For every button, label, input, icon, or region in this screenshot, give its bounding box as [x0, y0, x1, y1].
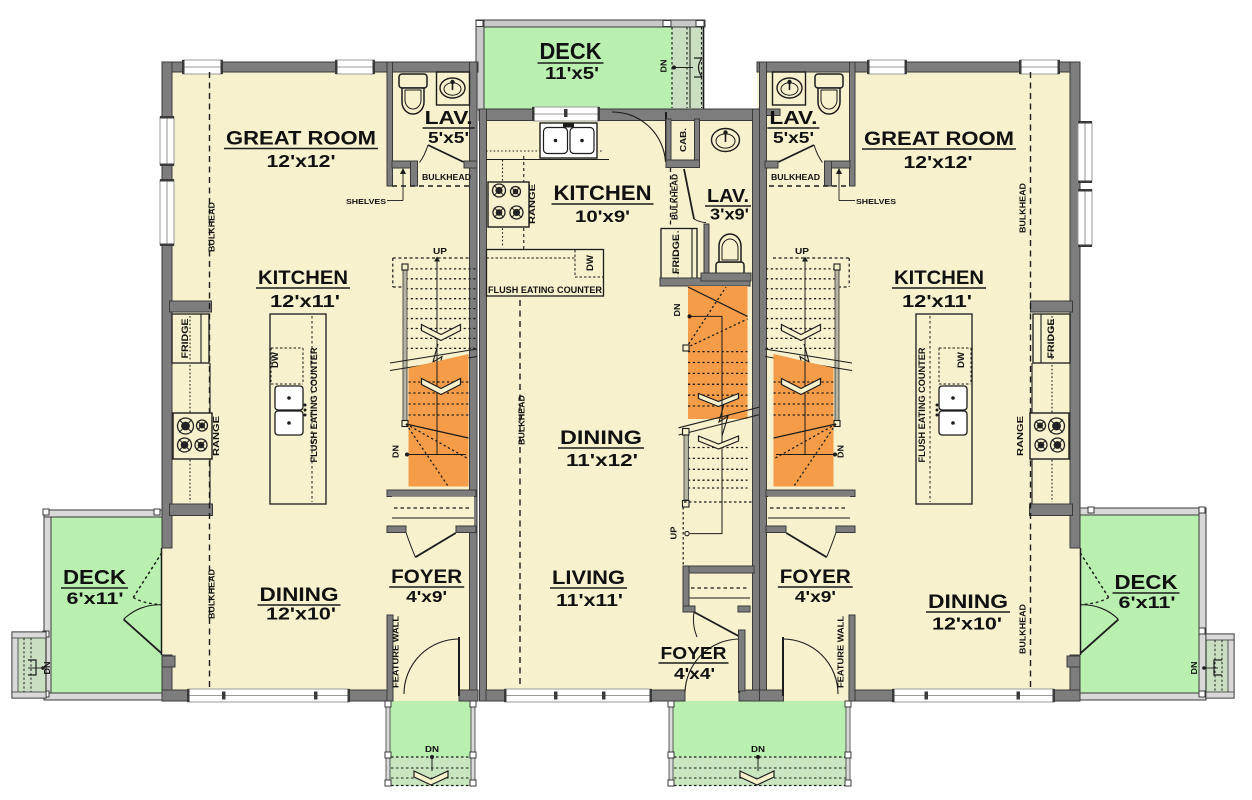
- svg-text:5'x5': 5'x5': [773, 130, 814, 147]
- svg-text:RANGE: RANGE: [211, 416, 221, 456]
- svg-text:FLUSH EATING COUNTER: FLUSH EATING COUNTER: [917, 347, 927, 462]
- svg-text:LAV.: LAV.: [707, 185, 749, 206]
- svg-text:DECK: DECK: [63, 567, 127, 589]
- svg-text:FOYER: FOYER: [661, 643, 727, 663]
- svg-text:CAB.: CAB.: [679, 128, 688, 152]
- svg-text:DW: DW: [270, 351, 280, 368]
- svg-text:DN: DN: [391, 445, 401, 458]
- svg-text:FLUSH EATING COUNTER: FLUSH EATING COUNTER: [488, 285, 602, 296]
- svg-text:12'x12': 12'x12': [267, 151, 336, 171]
- svg-text:DN: DN: [672, 304, 682, 317]
- svg-text:UP: UP: [433, 246, 447, 256]
- svg-text:SHELVES: SHELVES: [346, 199, 386, 206]
- svg-text:RANGE: RANGE: [1015, 416, 1025, 456]
- svg-text:KITCHEN: KITCHEN: [554, 182, 652, 205]
- svg-text:FOYER: FOYER: [391, 567, 462, 588]
- svg-text:UP: UP: [669, 526, 679, 539]
- svg-text:FOYER: FOYER: [780, 567, 851, 588]
- svg-text:RANGE: RANGE: [527, 184, 537, 224]
- svg-text:DINING: DINING: [928, 592, 1008, 613]
- svg-text:FRIDGE: FRIDGE: [671, 234, 681, 274]
- svg-text:DN: DN: [659, 60, 669, 73]
- svg-text:SHELVES: SHELVES: [856, 199, 896, 206]
- svg-text:BULKHEAD: BULKHEAD: [207, 569, 217, 619]
- svg-text:11'x11': 11'x11': [556, 590, 623, 610]
- svg-text:FLUSH EATING COUNTER: FLUSH EATING COUNTER: [309, 347, 319, 462]
- svg-text:BULKHEAD: BULKHEAD: [517, 395, 527, 445]
- svg-text:FRIDGE: FRIDGE: [180, 319, 190, 359]
- svg-text:BULKHEAD: BULKHEAD: [771, 173, 820, 182]
- svg-text:11'x12': 11'x12': [566, 450, 638, 470]
- svg-text:FRIDGE: FRIDGE: [1046, 319, 1056, 359]
- svg-text:LAV.: LAV.: [425, 107, 473, 128]
- svg-text:3'x9': 3'x9': [710, 207, 749, 224]
- svg-text:12'x12': 12'x12': [904, 152, 973, 172]
- svg-text:12'x11': 12'x11': [270, 291, 340, 311]
- svg-text:GREAT ROOM: GREAT ROOM: [226, 129, 376, 150]
- svg-text:5'x5': 5'x5': [428, 130, 469, 147]
- svg-text:BULKHEAD: BULKHEAD: [1018, 604, 1028, 654]
- svg-text:DECK: DECK: [1115, 572, 1179, 594]
- svg-text:10'x9': 10'x9': [575, 207, 630, 226]
- svg-text:4'x9': 4'x9': [795, 589, 836, 606]
- svg-text:DINING: DINING: [560, 428, 642, 449]
- svg-text:12'x10': 12'x10': [932, 614, 1002, 634]
- svg-text:4'x9': 4'x9': [406, 589, 447, 606]
- svg-text:FEATURE WALL: FEATURE WALL: [836, 616, 846, 688]
- svg-text:GREAT ROOM: GREAT ROOM: [864, 129, 1014, 150]
- svg-text:UP: UP: [795, 246, 809, 256]
- svg-text:DN: DN: [425, 744, 439, 754]
- svg-text:12'x10': 12'x10': [266, 604, 336, 624]
- svg-text:DECK: DECK: [540, 38, 602, 64]
- svg-text:6'x11': 6'x11': [67, 589, 124, 608]
- svg-text:FEATURE WALL: FEATURE WALL: [391, 616, 401, 688]
- svg-text:DN: DN: [751, 744, 765, 754]
- svg-text:BULKHEAD: BULKHEAD: [422, 173, 471, 182]
- svg-text:KITCHEN: KITCHEN: [258, 268, 348, 289]
- svg-text:BULKHEAD: BULKHEAD: [207, 202, 217, 252]
- svg-text:4'x4': 4'x4': [674, 666, 715, 683]
- svg-text:DN: DN: [1190, 661, 1199, 674]
- svg-text:LAV.: LAV.: [769, 107, 817, 128]
- svg-text:DW: DW: [956, 351, 966, 368]
- svg-text:11'x5': 11'x5': [545, 63, 599, 83]
- svg-text:KITCHEN: KITCHEN: [894, 268, 984, 289]
- svg-text:BULKHEAD: BULKHEAD: [671, 174, 680, 220]
- svg-text:BULKHEAD: BULKHEAD: [1018, 183, 1028, 233]
- svg-text:12'x11': 12'x11': [902, 291, 972, 311]
- svg-text:6'x11': 6'x11': [1119, 593, 1176, 612]
- svg-text:DW: DW: [585, 254, 595, 271]
- svg-text:LIVING: LIVING: [552, 568, 625, 589]
- svg-text:DN: DN: [836, 445, 846, 458]
